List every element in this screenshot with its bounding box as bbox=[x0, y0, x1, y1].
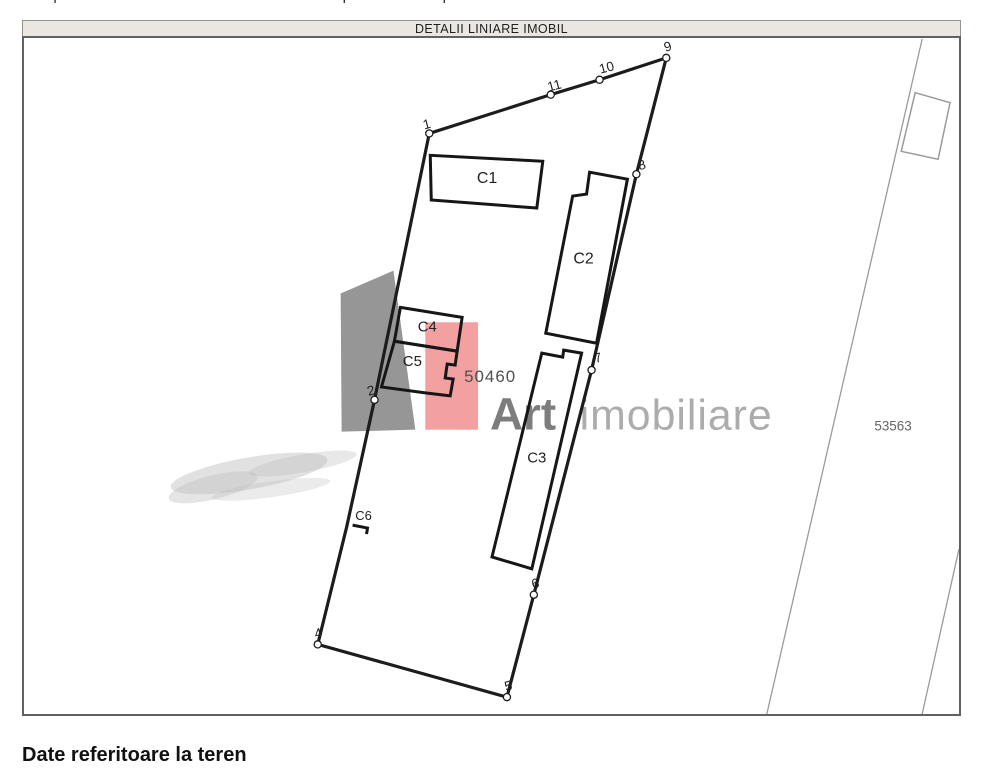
boundary-point-label-1: 1 bbox=[421, 116, 432, 132]
plan-frame: Artimobiliare53563C1C2C3C4C5C65046012456… bbox=[22, 36, 961, 716]
boundary-point-marker-5 bbox=[503, 694, 510, 701]
parcel-number: 50460 bbox=[464, 367, 516, 386]
cadastral-document-page: Suprafetele sunt determinate in planul d… bbox=[0, 0, 1002, 768]
neighbor-building-outline bbox=[901, 93, 950, 160]
boundary-point-label-9: 9 bbox=[662, 38, 673, 54]
building-label-c1: C1 bbox=[477, 170, 498, 187]
section-header-bar: DETALII LINIARE IMOBIL bbox=[22, 20, 961, 37]
building-label-c5: C5 bbox=[403, 353, 422, 370]
section-footer-title: Date referitoare la teren bbox=[22, 744, 247, 767]
boundary-point-marker-9 bbox=[663, 54, 670, 61]
neighbor-boundary-line bbox=[922, 549, 959, 714]
building-label-c2: C2 bbox=[573, 251, 594, 268]
boundary-point-marker-6 bbox=[530, 591, 537, 598]
neighbor-boundary-line bbox=[767, 39, 922, 714]
building-outline-c6 bbox=[353, 525, 368, 534]
boundary-point-marker-7 bbox=[588, 366, 595, 373]
site-plan-drawing: Artimobiliare53563C1C2C3C4C5C65046012456… bbox=[24, 38, 959, 714]
neighbor-parcel-number: 53563 bbox=[874, 419, 911, 434]
section-header-title: DETALII LINIARE IMOBIL bbox=[415, 22, 568, 36]
boundary-point-marker-10 bbox=[596, 76, 603, 83]
watermark-gray-shape bbox=[341, 271, 416, 432]
boundary-point-marker-4 bbox=[314, 641, 321, 648]
building-label-c4: C4 bbox=[418, 318, 437, 335]
clipped-top-text: Suprafetele sunt determinate in planul d… bbox=[30, 0, 633, 4]
watermark-word-imobiliare: imobiliare bbox=[580, 392, 773, 440]
building-label-c6: C6 bbox=[355, 508, 372, 523]
building-label-c3: C3 bbox=[527, 449, 546, 466]
